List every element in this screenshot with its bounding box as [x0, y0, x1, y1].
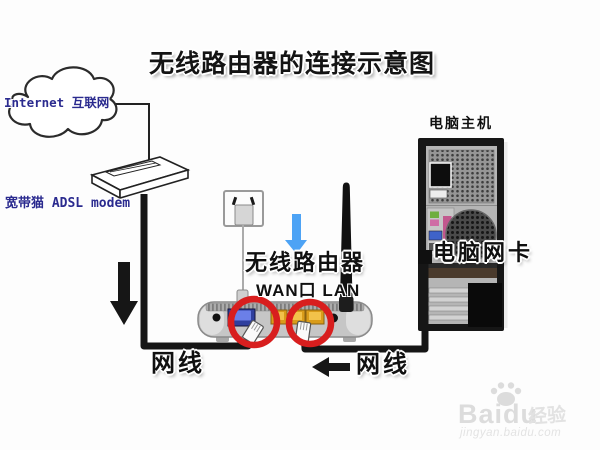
- watermark-url: jingyan.baidu.com: [460, 427, 561, 439]
- watermark-brand-suffix: 经验: [527, 400, 567, 430]
- left-arrow-icon: [312, 357, 350, 377]
- power-outlet: [224, 191, 263, 226]
- pc-tower: [418, 138, 508, 331]
- watermark-brand: Baidu: [458, 399, 538, 430]
- pc-nic-label: 电脑网卡: [433, 241, 533, 265]
- wan-lan-ports-label: WAN口 LAN: [256, 282, 360, 301]
- page-title: 无线路由器的连接示意图: [149, 44, 435, 80]
- down-arrow-icon: [110, 262, 138, 325]
- blue-down-arrow-icon: [285, 214, 307, 254]
- pc-tower-label: 电脑主机: [429, 116, 493, 131]
- diagram-canvas: 无线路由器的连接示意图 Internet 互联网 宽带猫 ADSL modem …: [0, 0, 600, 450]
- pc-nic-port: [418, 250, 432, 264]
- wireless-router-label: 无线路由器: [245, 251, 365, 275]
- cable-label-router-pc: 网线: [356, 352, 410, 378]
- adsl-modem-label: 宽带猫 ADSL modem: [5, 197, 130, 211]
- power-jack: [213, 314, 221, 322]
- cable-label-modem-router: 网线: [151, 351, 205, 377]
- baidu-watermark: Baidu 经验 jingyan.baidu.com: [458, 383, 588, 443]
- adsl-modem: [92, 157, 188, 198]
- internet-cloud-label: Internet 互联网: [4, 96, 109, 110]
- power-socket: [430, 163, 451, 187]
